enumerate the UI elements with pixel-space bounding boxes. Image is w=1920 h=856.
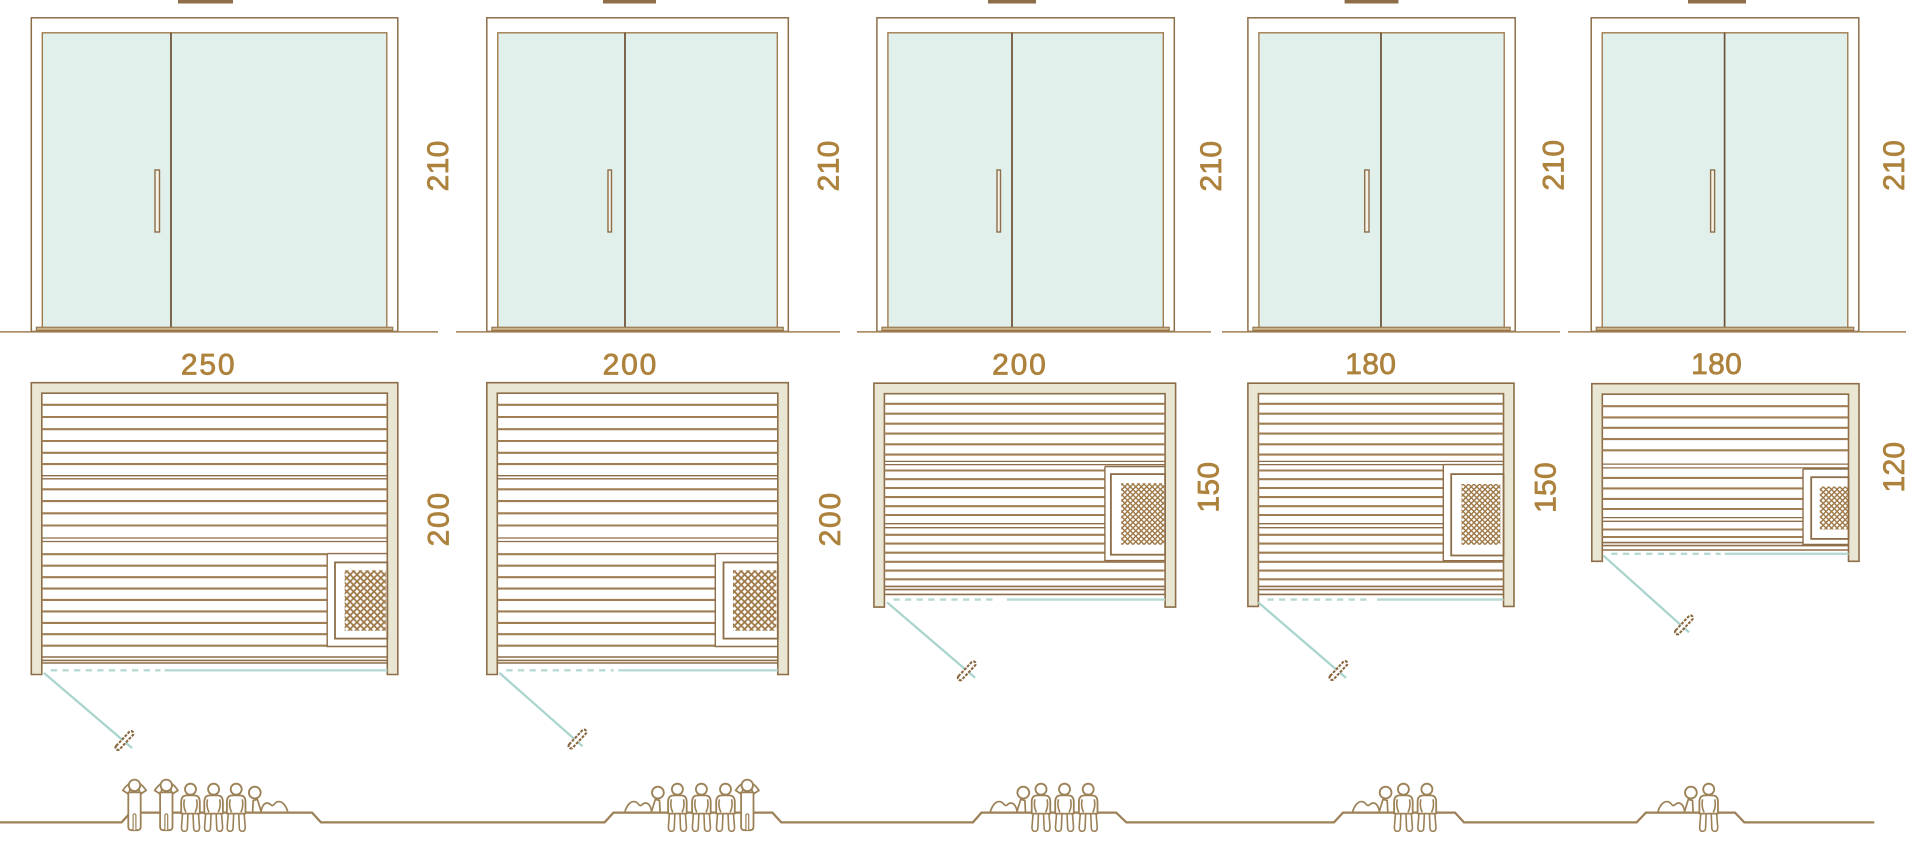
svg-text:200: 200 bbox=[603, 349, 658, 382]
svg-text:200: 200 bbox=[992, 349, 1047, 382]
svg-text:120: 120 bbox=[1878, 442, 1911, 493]
svg-text:210: 210 bbox=[813, 140, 846, 191]
svg-text:150: 150 bbox=[1193, 462, 1226, 513]
svg-text:200: 200 bbox=[423, 491, 456, 546]
svg-text:210: 210 bbox=[422, 140, 455, 191]
svg-text:210: 210 bbox=[1878, 140, 1911, 191]
svg-text:180: 180 bbox=[1691, 348, 1742, 381]
svg-text:200: 200 bbox=[814, 491, 847, 546]
svg-text:210: 210 bbox=[1195, 141, 1228, 192]
svg-text:180: 180 bbox=[1345, 348, 1396, 381]
svg-text:150: 150 bbox=[1530, 462, 1563, 513]
svg-text:250: 250 bbox=[181, 349, 236, 382]
svg-text:210: 210 bbox=[1538, 140, 1571, 191]
